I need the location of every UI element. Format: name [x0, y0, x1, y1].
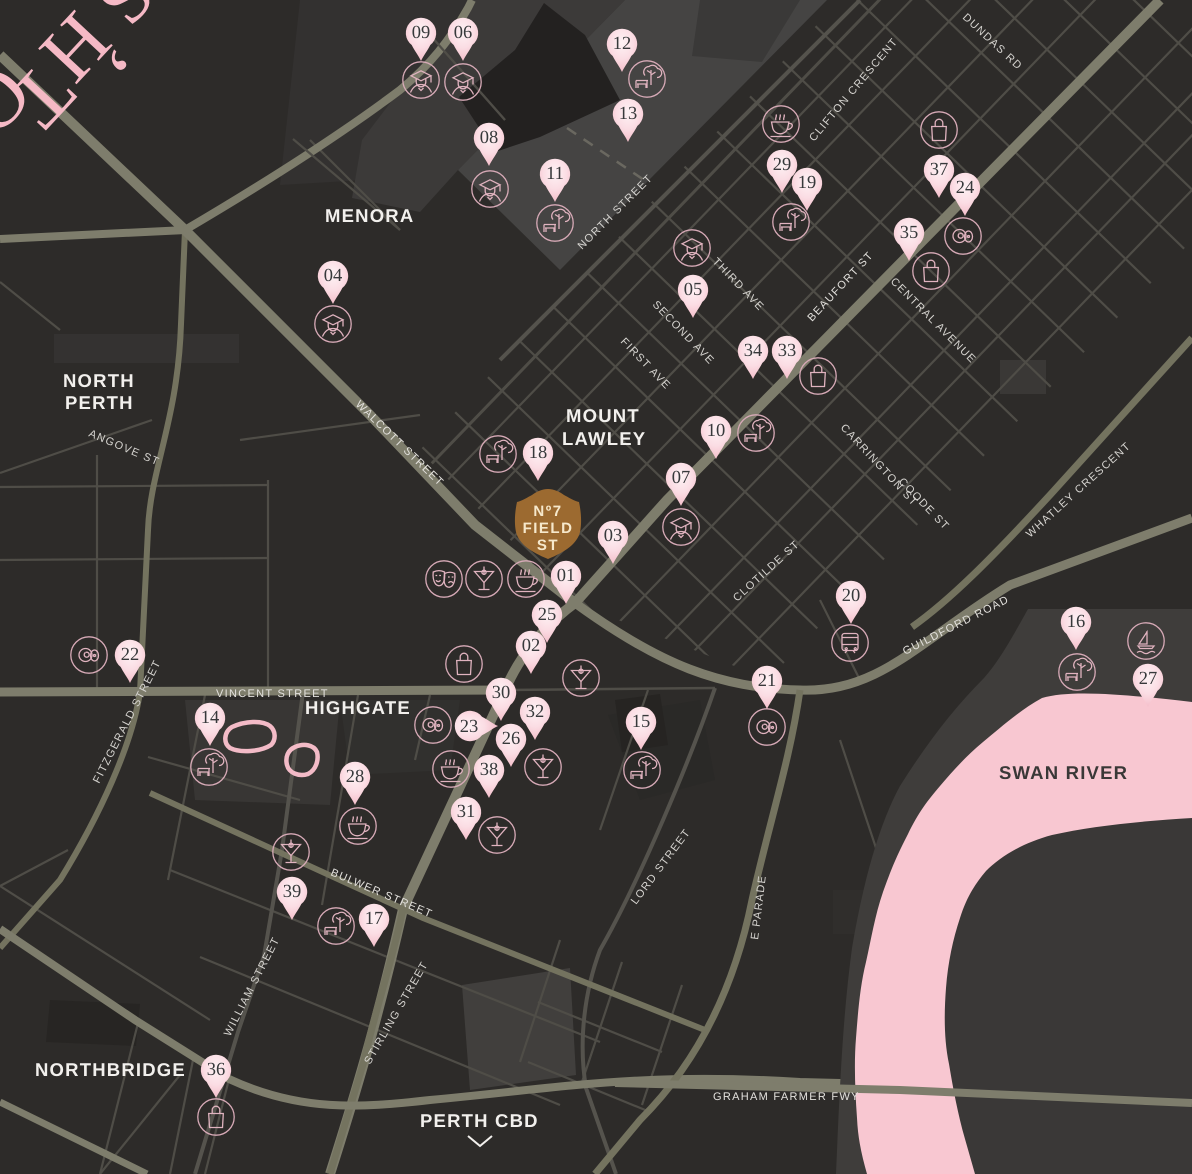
- svg-text:07: 07: [672, 468, 691, 488]
- svg-text:20: 20: [842, 586, 861, 606]
- svg-text:26: 26: [502, 729, 521, 749]
- svg-text:25: 25: [538, 605, 557, 625]
- svg-text:36: 36: [207, 1060, 226, 1080]
- svg-text:SWAN RIVER: SWAN RIVER: [999, 762, 1128, 783]
- svg-text:13: 13: [619, 104, 638, 124]
- svg-text:37: 37: [930, 160, 949, 180]
- svg-text:03: 03: [604, 526, 623, 546]
- svg-text:18: 18: [529, 443, 548, 463]
- svg-text:06: 06: [454, 23, 473, 43]
- svg-text:11: 11: [546, 164, 564, 184]
- svg-text:MOUNT: MOUNT: [566, 405, 640, 426]
- svg-text:31: 31: [457, 802, 476, 822]
- svg-text:LAWLEY: LAWLEY: [562, 428, 646, 449]
- svg-text:14: 14: [201, 708, 220, 728]
- svg-text:05: 05: [684, 280, 703, 300]
- svg-text:HIGHGATE: HIGHGATE: [305, 697, 411, 718]
- svg-text:08: 08: [480, 128, 499, 148]
- svg-text:30: 30: [492, 683, 511, 703]
- svg-text:ST: ST: [537, 537, 559, 554]
- svg-text:09: 09: [412, 23, 431, 43]
- svg-text:28: 28: [346, 767, 365, 787]
- svg-text:24: 24: [956, 178, 975, 198]
- svg-text:12: 12: [613, 34, 632, 54]
- svg-text:27: 27: [1139, 669, 1158, 689]
- svg-text:19: 19: [798, 173, 817, 193]
- svg-text:10: 10: [707, 421, 726, 441]
- svg-text:16: 16: [1067, 612, 1086, 632]
- svg-text:15: 15: [632, 712, 651, 732]
- svg-text:32: 32: [526, 702, 545, 722]
- svg-text:17: 17: [365, 909, 384, 929]
- svg-text:39: 39: [283, 882, 302, 902]
- svg-text:FIELD: FIELD: [523, 520, 574, 537]
- svg-text:38: 38: [480, 760, 499, 780]
- svg-text:29: 29: [773, 155, 792, 175]
- svg-text:MENORA: MENORA: [325, 205, 414, 226]
- svg-text:34: 34: [744, 341, 763, 361]
- svg-text:PERTH CBD: PERTH CBD: [420, 1110, 539, 1131]
- svg-text:NORTHBRIDGE: NORTHBRIDGE: [35, 1059, 186, 1080]
- svg-text:01: 01: [557, 566, 576, 586]
- svg-text:33: 33: [778, 341, 797, 361]
- svg-text:GRAHAM FARMER FWY: GRAHAM FARMER FWY: [713, 1091, 860, 1103]
- svg-text:NORTH: NORTH: [63, 370, 135, 391]
- svg-text:22: 22: [121, 645, 140, 665]
- svg-text:02: 02: [522, 636, 541, 656]
- svg-text:23: 23: [460, 717, 479, 737]
- svg-text:04: 04: [324, 266, 343, 286]
- svg-text:21: 21: [758, 671, 777, 691]
- svg-text:35: 35: [900, 223, 919, 243]
- svg-text:PERTH: PERTH: [65, 392, 134, 413]
- svg-text:Nº7: Nº7: [533, 503, 562, 520]
